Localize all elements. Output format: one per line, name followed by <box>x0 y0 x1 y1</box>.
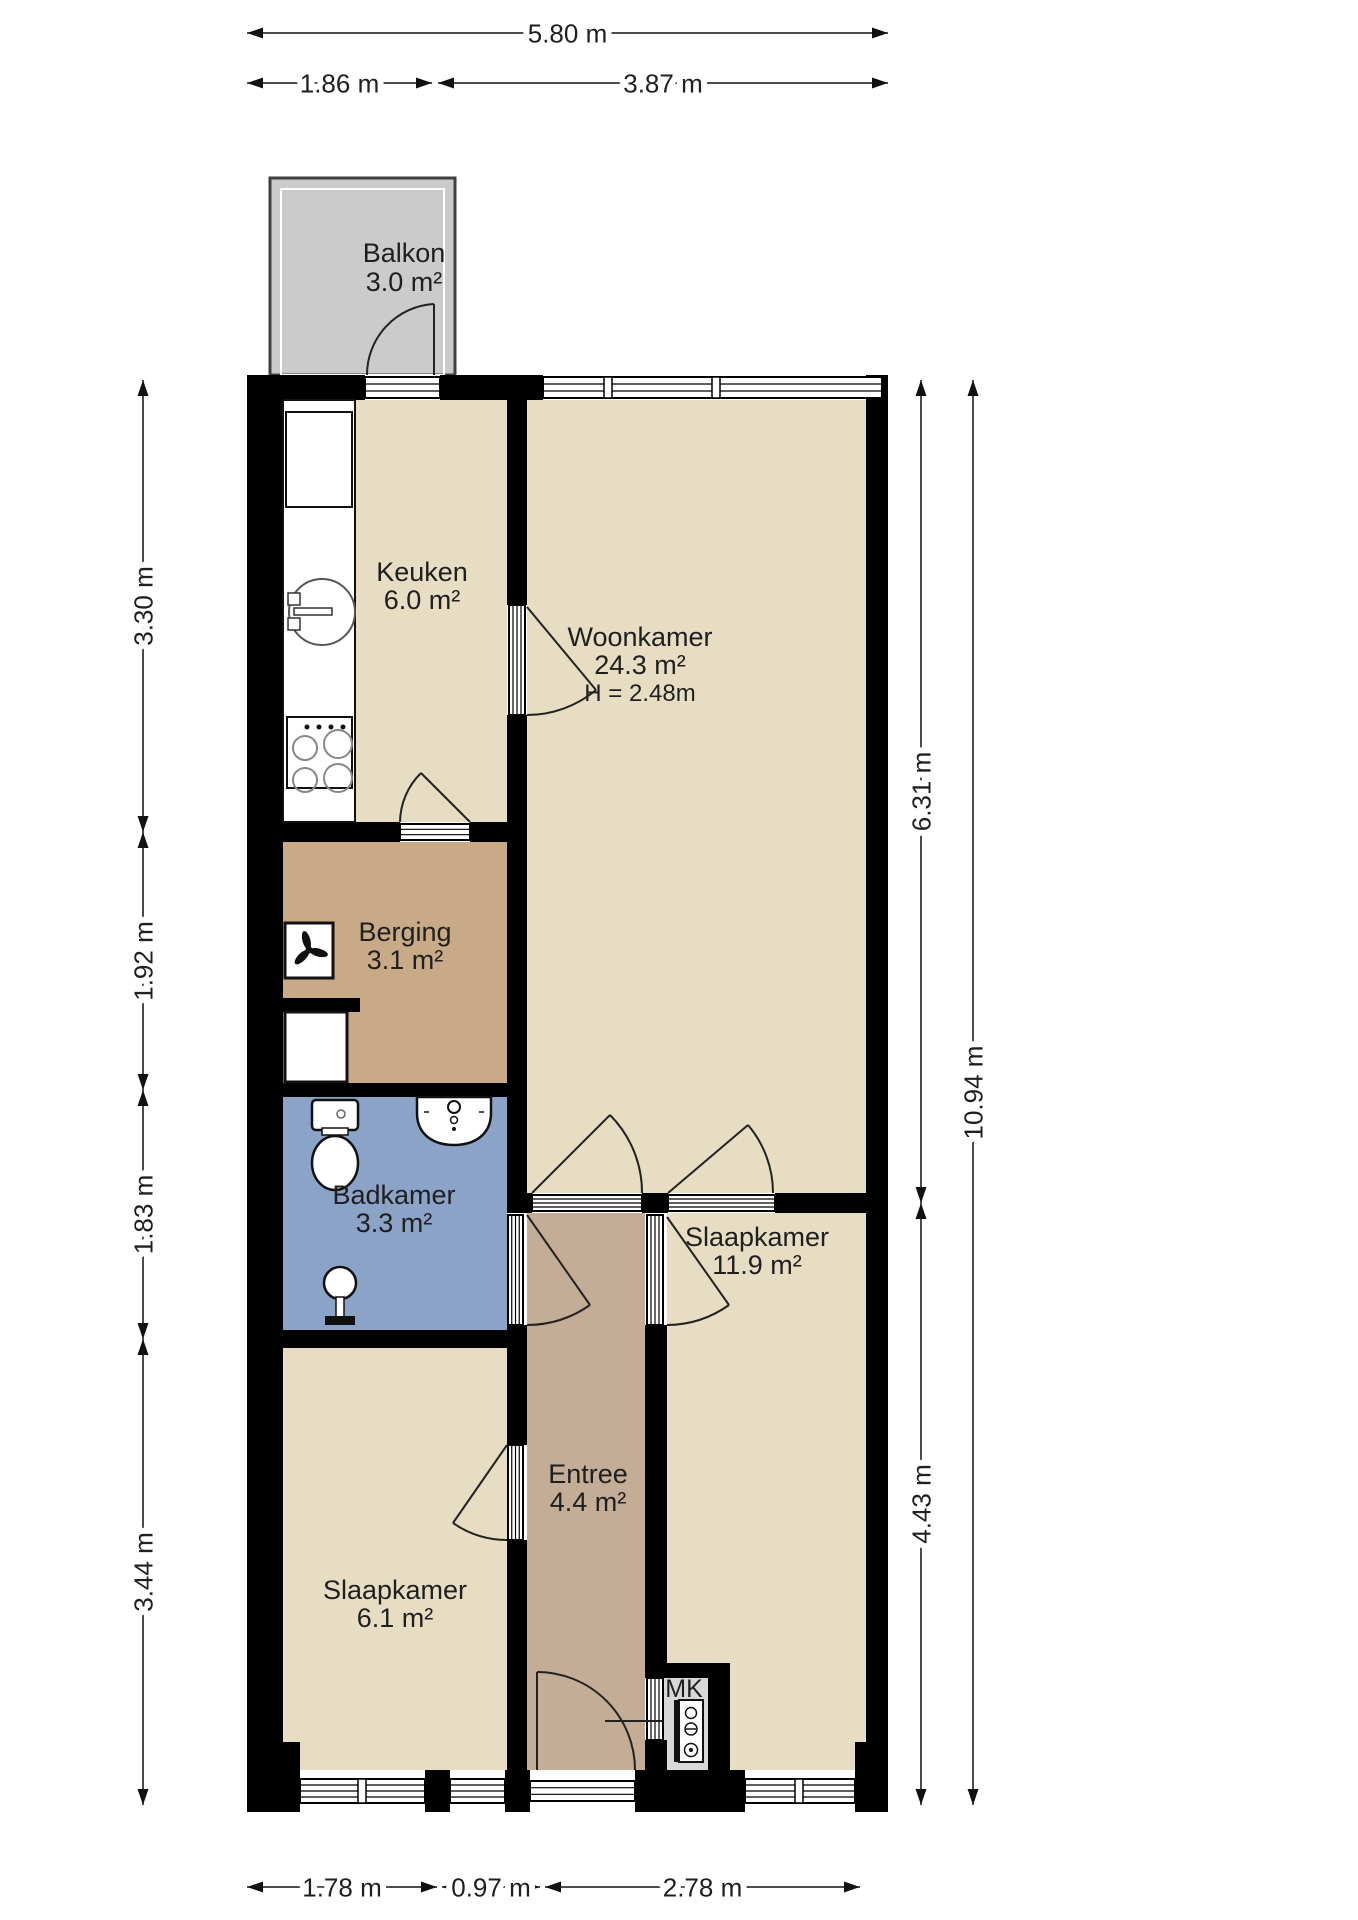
dim-bottom-slaapkamer-right-arrowhead <box>545 1882 561 1893</box>
kitchen-cabinet <box>286 412 352 507</box>
badkamer-area-label: 3.3 m² <box>356 1208 433 1238</box>
dim-right-woonkamer-label: 6.31 m <box>907 752 937 832</box>
window-bottom-left-mullion <box>358 1779 366 1803</box>
dim-bottom-slaapkamer-right-label: 2.78 m <box>663 1873 743 1903</box>
keuken-berging-threshold <box>400 824 470 840</box>
meter-dial-dot <box>689 1748 693 1752</box>
window-top-facade <box>543 377 882 398</box>
dim-width-right-label: 3.87 m <box>623 69 703 99</box>
entree-area-label: 4.4 m² <box>550 1487 627 1517</box>
dim-bottom-slaapkamer-arrowhead <box>247 1882 263 1893</box>
kitchen-faucet-spout-icon <box>294 608 332 615</box>
dim-right-slaapkamer-label: 4.43 m <box>907 1464 937 1544</box>
keuken-room-label: Keuken <box>376 557 468 587</box>
wall-bottom-corner-right <box>855 1742 888 1812</box>
window-bottom-panel <box>450 1779 505 1803</box>
shower-base-icon <box>325 1316 355 1325</box>
wall-mk-right <box>708 1678 730 1770</box>
berging-niche <box>285 1012 347 1082</box>
toilet-tank-icon <box>312 1100 358 1130</box>
wall-left <box>247 375 283 1812</box>
dim-left-slaapkamer: 3.44 m <box>129 1339 159 1805</box>
woonkamer-area-label: 24.3 m² <box>594 650 686 680</box>
balkon-door-threshold-frame <box>365 377 440 398</box>
wall-bottom-post-a <box>425 1770 450 1812</box>
dim-width-left-arrowhead <box>416 78 432 89</box>
dim-left-keuken-arrowhead <box>138 816 149 832</box>
slaapkamer-left-room-label: Slaapkamer <box>323 1575 467 1605</box>
balkon-area-label: 3.0 m² <box>366 267 443 297</box>
slaapkamer-left-floor <box>283 1348 507 1770</box>
keuken-area-label: 6.0 m² <box>384 585 461 615</box>
window-bottom-right <box>745 1779 855 1803</box>
fan-hub-icon <box>306 947 313 954</box>
wall-badkamer-bottom <box>283 1330 507 1348</box>
wall-keuken-woonkamer-b <box>507 715 527 1193</box>
wall-berging-badkamer <box>283 1083 507 1097</box>
window-top-facade-mullion <box>712 377 720 398</box>
dim-right-total: 10.94 m <box>959 380 989 1805</box>
balkon-door-threshold <box>365 377 440 398</box>
wall-bottom-corner-left <box>247 1742 300 1812</box>
kitchen-faucet-valve-top-icon <box>288 593 300 605</box>
dim-total-width-arrowhead <box>872 28 888 39</box>
window-bottom-left <box>300 1779 425 1803</box>
woonkamer-height-label: H = 2.48m <box>584 680 695 707</box>
dim-bottom-slaapkamer: 1.78 m <box>247 1873 437 1903</box>
door-panel-keuken <box>509 605 525 715</box>
dim-right-woonkamer-arrowhead <box>916 1187 927 1203</box>
dim-bottom-slaapkamer-right: 2.78 m <box>545 1873 860 1903</box>
balkon-room-label: Balkon <box>363 238 446 268</box>
dim-left-slaapkamer-label: 3.44 m <box>129 1532 159 1612</box>
door-panel-slaapkamer-left <box>508 1445 523 1540</box>
slaapkamer-right-room-label: Slaapkamer <box>685 1222 829 1252</box>
door-panel-badkamer <box>508 1215 523 1325</box>
dim-total-width-arrowhead <box>247 28 263 39</box>
shower-head-icon <box>324 1267 356 1299</box>
shower-stem-icon <box>336 1297 344 1318</box>
keuken-berging-threshold-frame <box>400 824 470 840</box>
berging-room-label: Berging <box>358 917 451 947</box>
dim-left-berging: 1.92 m <box>129 832 159 1090</box>
dim-left-berging-arrowhead <box>138 1074 149 1090</box>
dim-width-right-arrowhead <box>872 78 888 89</box>
dim-bottom-entree: 0.97 m <box>442 1873 540 1903</box>
dim-width-right-arrowhead <box>438 78 454 89</box>
dim-right-woonkamer: 6.31 m <box>907 380 937 1203</box>
floorplan-canvas: Balkon3.0 m²Keuken6.0 m²Woonkamer24.3 m²… <box>0 0 1358 1920</box>
stove-knob-dot <box>317 725 322 730</box>
wall-keuken-woonkamer-a <box>507 400 527 605</box>
dim-left-berging-label: 1.92 m <box>129 921 159 1001</box>
dim-right-total-arrowhead <box>968 380 979 396</box>
dim-left-berging-arrowhead <box>138 832 149 848</box>
door-panel-slaapkamer-right <box>647 1215 663 1325</box>
wall-woonkamer-bottom-post <box>642 1193 668 1213</box>
window-top-facade-mullion <box>604 377 612 398</box>
front-door-threshold <box>530 1781 635 1801</box>
wall-berging-stub <box>283 998 360 1012</box>
dim-width-left-label: 1.86 m <box>300 69 380 99</box>
wall-keuken-bottom-b <box>470 822 527 842</box>
wall-bottom-post-b <box>505 1770 530 1812</box>
washbasin-faucet-icon <box>448 1101 460 1113</box>
dim-left-keuken-label: 3.30 m <box>129 566 159 646</box>
dim-left-badkamer-label: 1.83 m <box>129 1175 159 1255</box>
dim-right-total-arrowhead <box>968 1789 979 1805</box>
badkamer-room-label: Badkamer <box>332 1180 455 1210</box>
dim-bottom-slaapkamer-right-arrowhead <box>844 1882 860 1893</box>
dim-right-woonkamer-arrowhead <box>916 380 927 396</box>
kitchen-faucet-valve-bottom-icon <box>288 618 300 630</box>
wall-top-b <box>440 375 543 400</box>
wall-mk-below-door <box>645 1740 667 1770</box>
stove-knob-dot <box>341 725 346 730</box>
dim-bottom-entree-label: 0.97 m <box>451 1873 531 1903</box>
wall-bottom-mid <box>635 1770 745 1812</box>
wall-right <box>866 375 888 1812</box>
wall-woonkamer-bottom-a <box>507 1193 532 1213</box>
dim-width-left-arrowhead <box>247 78 263 89</box>
dim-right-slaapkamer-arrowhead <box>916 1203 927 1219</box>
slaapkamer-left-area-label: 6.1 m² <box>357 1603 434 1633</box>
dim-left-badkamer-arrowhead <box>138 1323 149 1339</box>
dim-left-slaapkamer-arrowhead <box>138 1339 149 1355</box>
front-door-threshold-frame <box>530 1781 635 1801</box>
floor-plan: Balkon3.0 m²Keuken6.0 m²Woonkamer24.3 m²… <box>0 0 1358 1920</box>
entree-room-label: Entree <box>548 1459 628 1489</box>
dim-width-left: 1.86 m <box>247 69 432 99</box>
dim-total-width: 5.80 m <box>247 19 888 49</box>
wall-entree-left-a <box>507 1325 527 1445</box>
dim-right-slaapkamer-arrowhead <box>916 1789 927 1805</box>
door-panel-mk <box>647 1678 663 1740</box>
dim-bottom-slaapkamer-arrowhead <box>421 1882 437 1893</box>
wall-entree-right <box>645 1325 667 1663</box>
toilet-hinge-icon <box>322 1128 348 1135</box>
berging-area-label: 3.1 m² <box>367 945 444 975</box>
glazed-door-woonkamer-slaapkamer <box>668 1195 775 1211</box>
dim-bottom-slaapkamer-label: 1.78 m <box>302 1873 382 1903</box>
glazed-door-woonkamer-entree <box>532 1195 642 1211</box>
wall-woonkamer-bottom-b <box>775 1193 888 1213</box>
dim-left-badkamer-arrowhead <box>138 1090 149 1106</box>
slaapkamer-right-area-label: 11.9 m² <box>712 1250 802 1280</box>
wall-entree-left-b <box>507 1540 527 1770</box>
dim-left-slaapkamer-arrowhead <box>138 1789 149 1805</box>
wall-keuken-bottom-a <box>283 822 400 842</box>
stove-knob-dot <box>305 725 310 730</box>
dim-right-slaapkamer: 4.43 m <box>907 1203 937 1805</box>
meter-dial-icon <box>686 1708 697 1719</box>
meterkast-label: MK <box>665 1675 703 1703</box>
window-bottom-right-mullion <box>795 1779 803 1803</box>
dim-left-badkamer: 1.83 m <box>129 1090 159 1339</box>
dim-left-keuken: 3.30 m <box>129 380 159 832</box>
dim-total-width-label: 5.80 m <box>528 19 608 49</box>
woonkamer-room-label: Woonkamer <box>567 622 712 652</box>
dim-width-right: 3.87 m <box>438 69 888 99</box>
dim-left-keuken-arrowhead <box>138 380 149 396</box>
stove-knob-dot <box>329 725 334 730</box>
washbasin-faucet-icon <box>452 1127 456 1131</box>
dim-right-total-label: 10.94 m <box>959 1046 989 1140</box>
woonkamer-floor <box>527 400 866 1193</box>
